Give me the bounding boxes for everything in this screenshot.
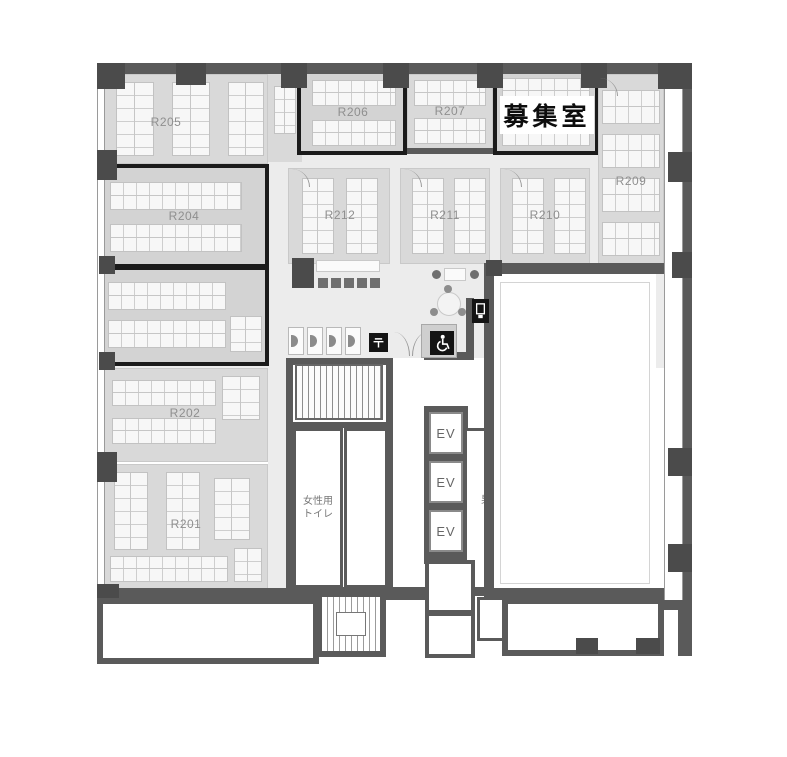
meeting-table xyxy=(222,376,260,420)
pillar xyxy=(636,638,660,654)
phone-booth xyxy=(288,327,304,355)
floor-plan: EV EV EV 女性用 トイレ 男性用 トイレ xyxy=(0,0,787,757)
shaft-room xyxy=(344,428,388,588)
phone-booth xyxy=(345,327,361,355)
desk-cluster xyxy=(228,82,264,156)
lounge-stool xyxy=(344,278,354,288)
desk-cluster xyxy=(116,82,154,156)
desk-cluster xyxy=(414,80,486,106)
room-label-r205: R205 xyxy=(151,115,182,129)
lounge-stool xyxy=(370,278,380,288)
pillar xyxy=(292,258,314,288)
meeting-table xyxy=(230,316,262,352)
womens-toilet-label: 女性用 トイレ xyxy=(303,495,333,521)
desk-cluster xyxy=(414,118,486,144)
pillar xyxy=(658,63,692,89)
pillar xyxy=(383,63,409,88)
wall xyxy=(484,263,684,274)
chair xyxy=(444,285,452,293)
pillar xyxy=(97,63,125,89)
vending-machine-glyph xyxy=(475,302,486,320)
room-label-r207: R207 xyxy=(435,104,466,118)
lounge-stool xyxy=(331,278,341,288)
pillar xyxy=(576,638,598,654)
staircase-upper xyxy=(295,364,383,420)
pillar xyxy=(672,252,692,278)
desk-cluster xyxy=(110,182,242,210)
vending-machine-icon xyxy=(472,299,489,323)
room-label-r206: R206 xyxy=(338,105,369,119)
desk-cluster xyxy=(108,320,226,348)
lounge-stool xyxy=(357,278,367,288)
wall xyxy=(407,148,493,154)
chair xyxy=(458,308,466,316)
recruit-label-box: 募集室 xyxy=(500,96,594,134)
staircase-lower-core xyxy=(336,612,366,636)
room-label-r204: R204 xyxy=(169,209,200,223)
desk-cluster xyxy=(312,120,396,146)
empty-room-inner-line xyxy=(500,282,650,584)
pillar xyxy=(668,152,692,182)
desk-cluster xyxy=(108,282,226,310)
wall xyxy=(97,588,317,598)
meeting-table xyxy=(234,548,262,582)
pillar xyxy=(668,448,692,476)
womens-toilet-line2: トイレ xyxy=(303,508,333,521)
cafe-table xyxy=(444,268,466,281)
desk-cluster xyxy=(602,222,660,256)
pillar xyxy=(99,256,115,274)
elevator-3-label: EV xyxy=(436,524,455,539)
wheelchair-glyph xyxy=(433,334,451,352)
pillar xyxy=(97,584,119,598)
postal-mark-icon xyxy=(369,333,388,352)
desk-cluster xyxy=(114,472,148,550)
elevator-2: EV xyxy=(429,461,463,503)
elevator-3: EV xyxy=(429,510,463,552)
pillar xyxy=(668,544,692,572)
pillar xyxy=(99,352,115,370)
meeting-table xyxy=(274,86,296,134)
service-room xyxy=(425,560,475,614)
wall xyxy=(484,588,664,598)
pillar xyxy=(97,150,117,180)
elevator-1: EV xyxy=(429,412,463,454)
postal-mark-glyph xyxy=(372,336,385,349)
room-label-r202: R202 xyxy=(170,406,201,420)
pillar xyxy=(477,63,503,88)
wall xyxy=(286,358,293,594)
desk-cluster xyxy=(602,134,660,168)
stool-round xyxy=(432,270,441,279)
desk-cluster xyxy=(166,472,200,550)
desk-cluster xyxy=(110,224,242,252)
service-room xyxy=(425,612,475,658)
pillar xyxy=(176,63,206,85)
pillar xyxy=(486,260,502,276)
lounge-counter xyxy=(316,260,380,272)
room-label-r212: R212 xyxy=(325,208,356,222)
desk-cluster xyxy=(112,418,216,444)
stool-round xyxy=(470,270,479,279)
meeting-table xyxy=(214,478,250,540)
desk-cluster xyxy=(110,556,228,582)
room-label-r209: R209 xyxy=(616,174,647,188)
phone-booth xyxy=(326,327,342,355)
bottom-left-room xyxy=(97,598,319,664)
wheelchair-icon xyxy=(430,331,454,355)
lounge-stool xyxy=(318,278,328,288)
elevator-2-label: EV xyxy=(436,475,455,490)
pillar xyxy=(97,452,117,482)
pillar xyxy=(281,63,307,88)
elevator-1-label: EV xyxy=(436,426,455,441)
corridor-strip-left xyxy=(268,368,288,592)
room-label-r201: R201 xyxy=(171,517,202,531)
wall xyxy=(386,591,428,600)
outer-wall-right xyxy=(683,63,692,610)
womens-toilet-line1: 女性用 xyxy=(303,495,333,508)
service-room-small xyxy=(477,597,505,641)
room-label-r211: R211 xyxy=(430,208,460,222)
room-label-r210: R210 xyxy=(530,208,561,222)
phone-booth xyxy=(307,327,323,355)
recruit-label: 募集室 xyxy=(503,97,590,133)
desk-cluster xyxy=(112,380,216,406)
chair xyxy=(430,308,438,316)
